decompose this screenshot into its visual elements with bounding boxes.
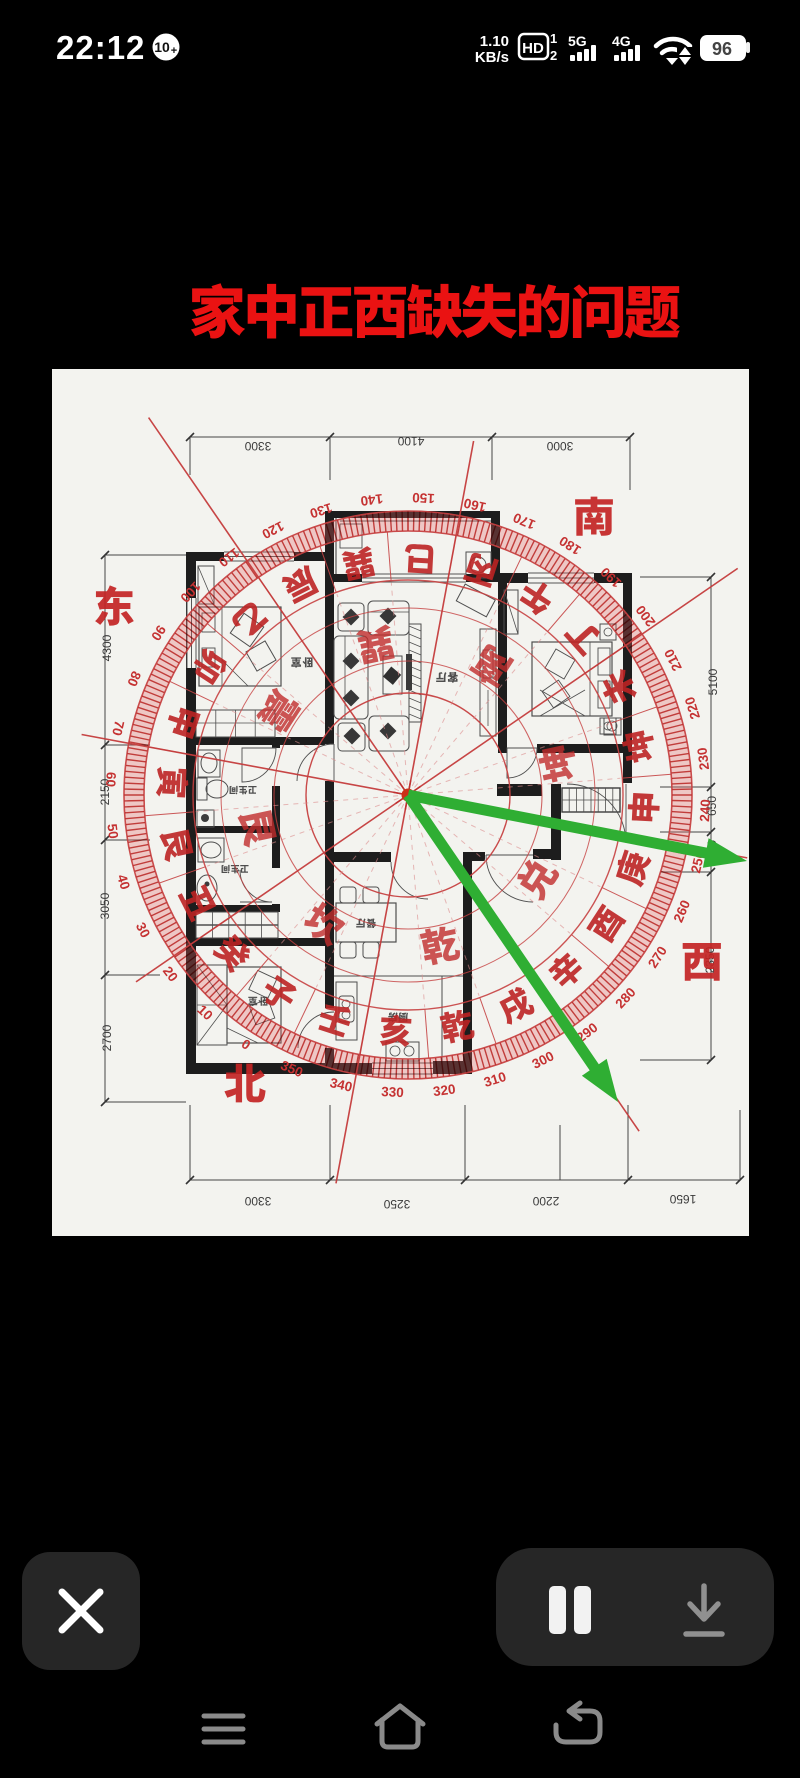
svg-text:3300: 3300 bbox=[244, 1194, 271, 1208]
svg-text:40: 40 bbox=[114, 873, 133, 892]
svg-text:50: 50 bbox=[104, 823, 121, 840]
svg-text:90: 90 bbox=[148, 623, 169, 644]
svg-text:140: 140 bbox=[360, 491, 384, 509]
svg-text:320: 320 bbox=[432, 1081, 456, 1099]
svg-text:10: 10 bbox=[154, 39, 170, 55]
svg-text:260: 260 bbox=[671, 898, 694, 925]
svg-text:300: 300 bbox=[530, 1048, 557, 1072]
svg-text:340: 340 bbox=[328, 1075, 353, 1095]
svg-text:270: 270 bbox=[645, 944, 670, 971]
svg-text:60: 60 bbox=[103, 772, 119, 788]
svg-text:1: 1 bbox=[550, 31, 557, 46]
svg-text:HD: HD bbox=[522, 40, 544, 57]
svg-text:1.10: 1.10 bbox=[480, 33, 509, 50]
svg-text:1650: 1650 bbox=[669, 1192, 696, 1206]
svg-text:5100: 5100 bbox=[706, 668, 720, 695]
svg-text:5G: 5G bbox=[568, 33, 587, 49]
svg-text:KB/s: KB/s bbox=[475, 49, 509, 66]
svg-text:310: 310 bbox=[482, 1069, 508, 1090]
svg-text:80: 80 bbox=[124, 669, 144, 689]
svg-text:3300: 3300 bbox=[244, 439, 271, 453]
svg-text:70: 70 bbox=[109, 719, 127, 737]
svg-text:170: 170 bbox=[511, 510, 538, 533]
svg-text:22:12: 22:12 bbox=[56, 29, 145, 66]
svg-text:2200: 2200 bbox=[532, 1194, 559, 1208]
svg-text:30: 30 bbox=[133, 920, 153, 940]
svg-text:330: 330 bbox=[381, 1084, 404, 1100]
svg-text:4300: 4300 bbox=[100, 634, 114, 661]
svg-text:96: 96 bbox=[712, 39, 732, 59]
svg-text:4100: 4100 bbox=[397, 434, 424, 448]
svg-text:3250: 3250 bbox=[383, 1197, 410, 1211]
svg-text:0: 0 bbox=[239, 1036, 253, 1053]
svg-text:210: 210 bbox=[661, 647, 685, 674]
svg-text:230: 230 bbox=[694, 747, 712, 771]
svg-text:220: 220 bbox=[682, 695, 703, 721]
svg-text:+: + bbox=[171, 45, 177, 57]
svg-text:4G: 4G bbox=[612, 33, 631, 49]
svg-text:20: 20 bbox=[160, 963, 181, 984]
svg-text:120: 120 bbox=[260, 518, 287, 542]
svg-text:240: 240 bbox=[697, 799, 713, 822]
svg-text:350: 350 bbox=[279, 1058, 306, 1081]
svg-text:180: 180 bbox=[557, 533, 584, 558]
svg-text:150: 150 bbox=[412, 490, 435, 506]
svg-text:3000: 3000 bbox=[546, 439, 573, 453]
svg-text:2700: 2700 bbox=[100, 1024, 114, 1051]
svg-text:2: 2 bbox=[550, 48, 557, 63]
svg-text:3050: 3050 bbox=[98, 892, 112, 919]
